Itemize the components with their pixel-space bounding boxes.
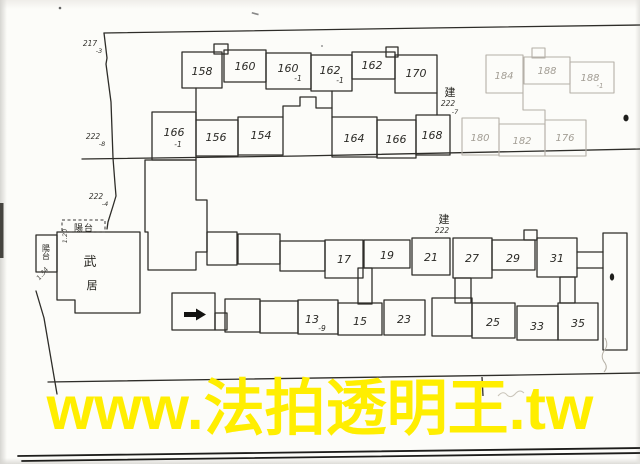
unit-label: 35 — [571, 317, 585, 330]
unit-label-sub: -1 — [294, 74, 301, 83]
unit-label: 33 — [530, 320, 544, 333]
corridor-box — [432, 298, 472, 336]
unit-label: 164 — [344, 132, 365, 145]
unit-label-sub: -1 — [597, 82, 604, 90]
unit-label: 182 — [512, 136, 531, 147]
stair-column — [145, 160, 237, 270]
unit-label: 168 — [422, 129, 443, 142]
edge-ink-streak — [0, 203, 4, 258]
ink-blob — [610, 273, 614, 280]
house-outline — [57, 232, 140, 313]
corridor-box — [207, 232, 237, 265]
dimension-label: 1.34 — [35, 266, 50, 282]
lower-building: 17 19 21 27 29 31 13 -9 15 23 25 33 35 建… — [172, 212, 627, 350]
unit-label: 23 — [397, 313, 411, 326]
speck — [59, 7, 62, 10]
unit-label: 158 — [192, 65, 213, 78]
building-label-number: 222 — [435, 226, 450, 235]
unit-label: 19 — [380, 249, 394, 262]
upper-building: 158 160 160 -1 162 -1 162 170 166 -1 156… — [152, 44, 459, 160]
unit-label: 176 — [555, 133, 574, 144]
unit-label: 13 — [305, 313, 319, 326]
scanned-floor-plan-page: 217 -3 222 -8 222 -4 158 160 160 -1 162 — [0, 0, 640, 464]
unit-label: 29 — [506, 252, 520, 265]
speck — [252, 12, 259, 15]
unit-label: 166 — [386, 133, 407, 146]
house-label-char-1: 武 — [83, 255, 96, 270]
unit-label: 180 — [470, 133, 489, 144]
boundary-marker-sub: -4 — [102, 200, 108, 208]
unit-label: 21 — [424, 251, 438, 264]
balcony-top-label: 陽台 — [74, 222, 94, 234]
boundary-marker-sub: -3 — [96, 47, 102, 55]
building-label-suffix: -7 — [452, 108, 459, 116]
unit-label: 17 — [337, 253, 351, 266]
stair-tab — [358, 268, 372, 304]
unit-label: 154 — [251, 129, 272, 142]
boundary-marker-sub: -8 — [99, 140, 105, 148]
unit-label: 184 — [494, 71, 513, 82]
house-label-char-2: 居 — [87, 279, 98, 292]
dimension-label: 1.20 — [61, 229, 69, 243]
roof-notch — [524, 230, 537, 240]
unit-label-sub: -9 — [318, 324, 326, 333]
unit-label: 15 — [353, 315, 367, 328]
unit-label: 166 — [164, 126, 185, 139]
unit-label-sub: -1 — [336, 76, 343, 85]
ink-blob — [623, 115, 628, 122]
unit-label: 156 — [206, 131, 227, 144]
unit-label: 31 — [550, 252, 564, 265]
corridor-box — [225, 299, 260, 332]
house: 陽台 陽台 1.20 1.34 武 居 — [35, 220, 140, 313]
unit-label: 170 — [406, 67, 427, 80]
corridor-box — [238, 234, 280, 264]
end-wing-outline — [603, 233, 627, 350]
building-label-char: 建 — [439, 212, 450, 226]
upper-building-faint-wing: 184 188 188 -1 180 182 176 — [462, 48, 614, 156]
unit-outline-highlighted — [172, 293, 215, 330]
unit-label-sub: -1 — [174, 140, 181, 149]
corridor-box — [260, 301, 298, 333]
unit-label: 160 — [235, 60, 256, 73]
scan-artifacts — [0, 7, 629, 397]
building-label-char: 建 — [445, 85, 456, 99]
watermark: www.法拍透明王.tw — [0, 374, 640, 442]
building-label-number: 222 — [441, 99, 456, 108]
unit-label: 162 — [362, 59, 383, 72]
stair-tab — [455, 278, 471, 303]
boundary-markers: 217 -3 222 -8 222 -4 — [83, 39, 108, 208]
speck — [321, 45, 323, 47]
unit-label: 25 — [486, 316, 500, 329]
corridor-box — [280, 241, 325, 271]
unit-label: 27 — [465, 252, 479, 265]
balcony-left-label: 陽台 — [42, 244, 51, 261]
stair-tab — [560, 277, 575, 303]
unit-label: 188 — [537, 66, 556, 77]
highlight-arrow-mark — [184, 309, 206, 321]
